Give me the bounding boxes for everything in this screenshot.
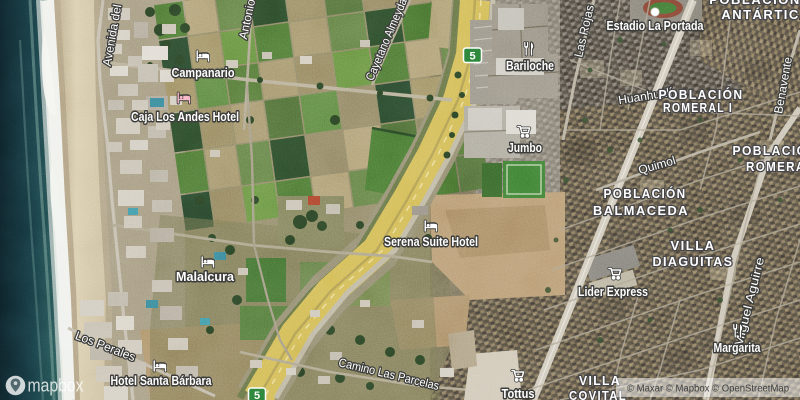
svg-text:Bariloche: Bariloche [506,58,554,73]
svg-text:BALMACEDA: BALMACEDA [593,203,689,218]
svg-text:POBLACIÓN: POBLACIÓN [604,186,687,201]
svg-text:ROMERAL: ROMERAL [746,159,800,174]
svg-text:ROMERAL I: ROMERAL I [663,100,733,115]
svg-text:5: 5 [254,390,260,400]
svg-text:© Maxar © Mapbox © OpenStreetM: © Maxar © Mapbox © OpenStreetMap [627,383,789,395]
svg-text:Serena Suite Hotel: Serena Suite Hotel [384,234,478,249]
svg-text:Tottus: Tottus [502,386,535,400]
svg-text:5: 5 [469,51,475,63]
svg-text:Campanario: Campanario [172,65,235,80]
svg-text:VILLA: VILLA [579,373,621,388]
svg-text:Caja Los Andes Hotel: Caja Los Andes Hotel [131,109,239,124]
svg-text:ANTÁRTICA: ANTÁRTICA [721,7,800,22]
svg-text:Hotel Santa Bárbara: Hotel Santa Bárbara [111,373,213,388]
svg-text:Jumbo: Jumbo [508,140,542,155]
svg-text:DIAGUITAS: DIAGUITAS [653,254,734,269]
svg-text:mapbox: mapbox [28,376,84,396]
svg-text:POBLACIÓN: POBLACIÓN [733,143,800,158]
svg-text:POBLACIÓN: POBLACIÓN [709,0,800,7]
svg-text:VILLA: VILLA [671,238,716,253]
svg-text:Margarita: Margarita [714,340,762,355]
svg-text:Lider Express: Lider Express [578,284,648,299]
svg-text:Estadio La Portada: Estadio La Portada [607,18,705,33]
svg-text:Malalcura: Malalcura [176,269,235,284]
